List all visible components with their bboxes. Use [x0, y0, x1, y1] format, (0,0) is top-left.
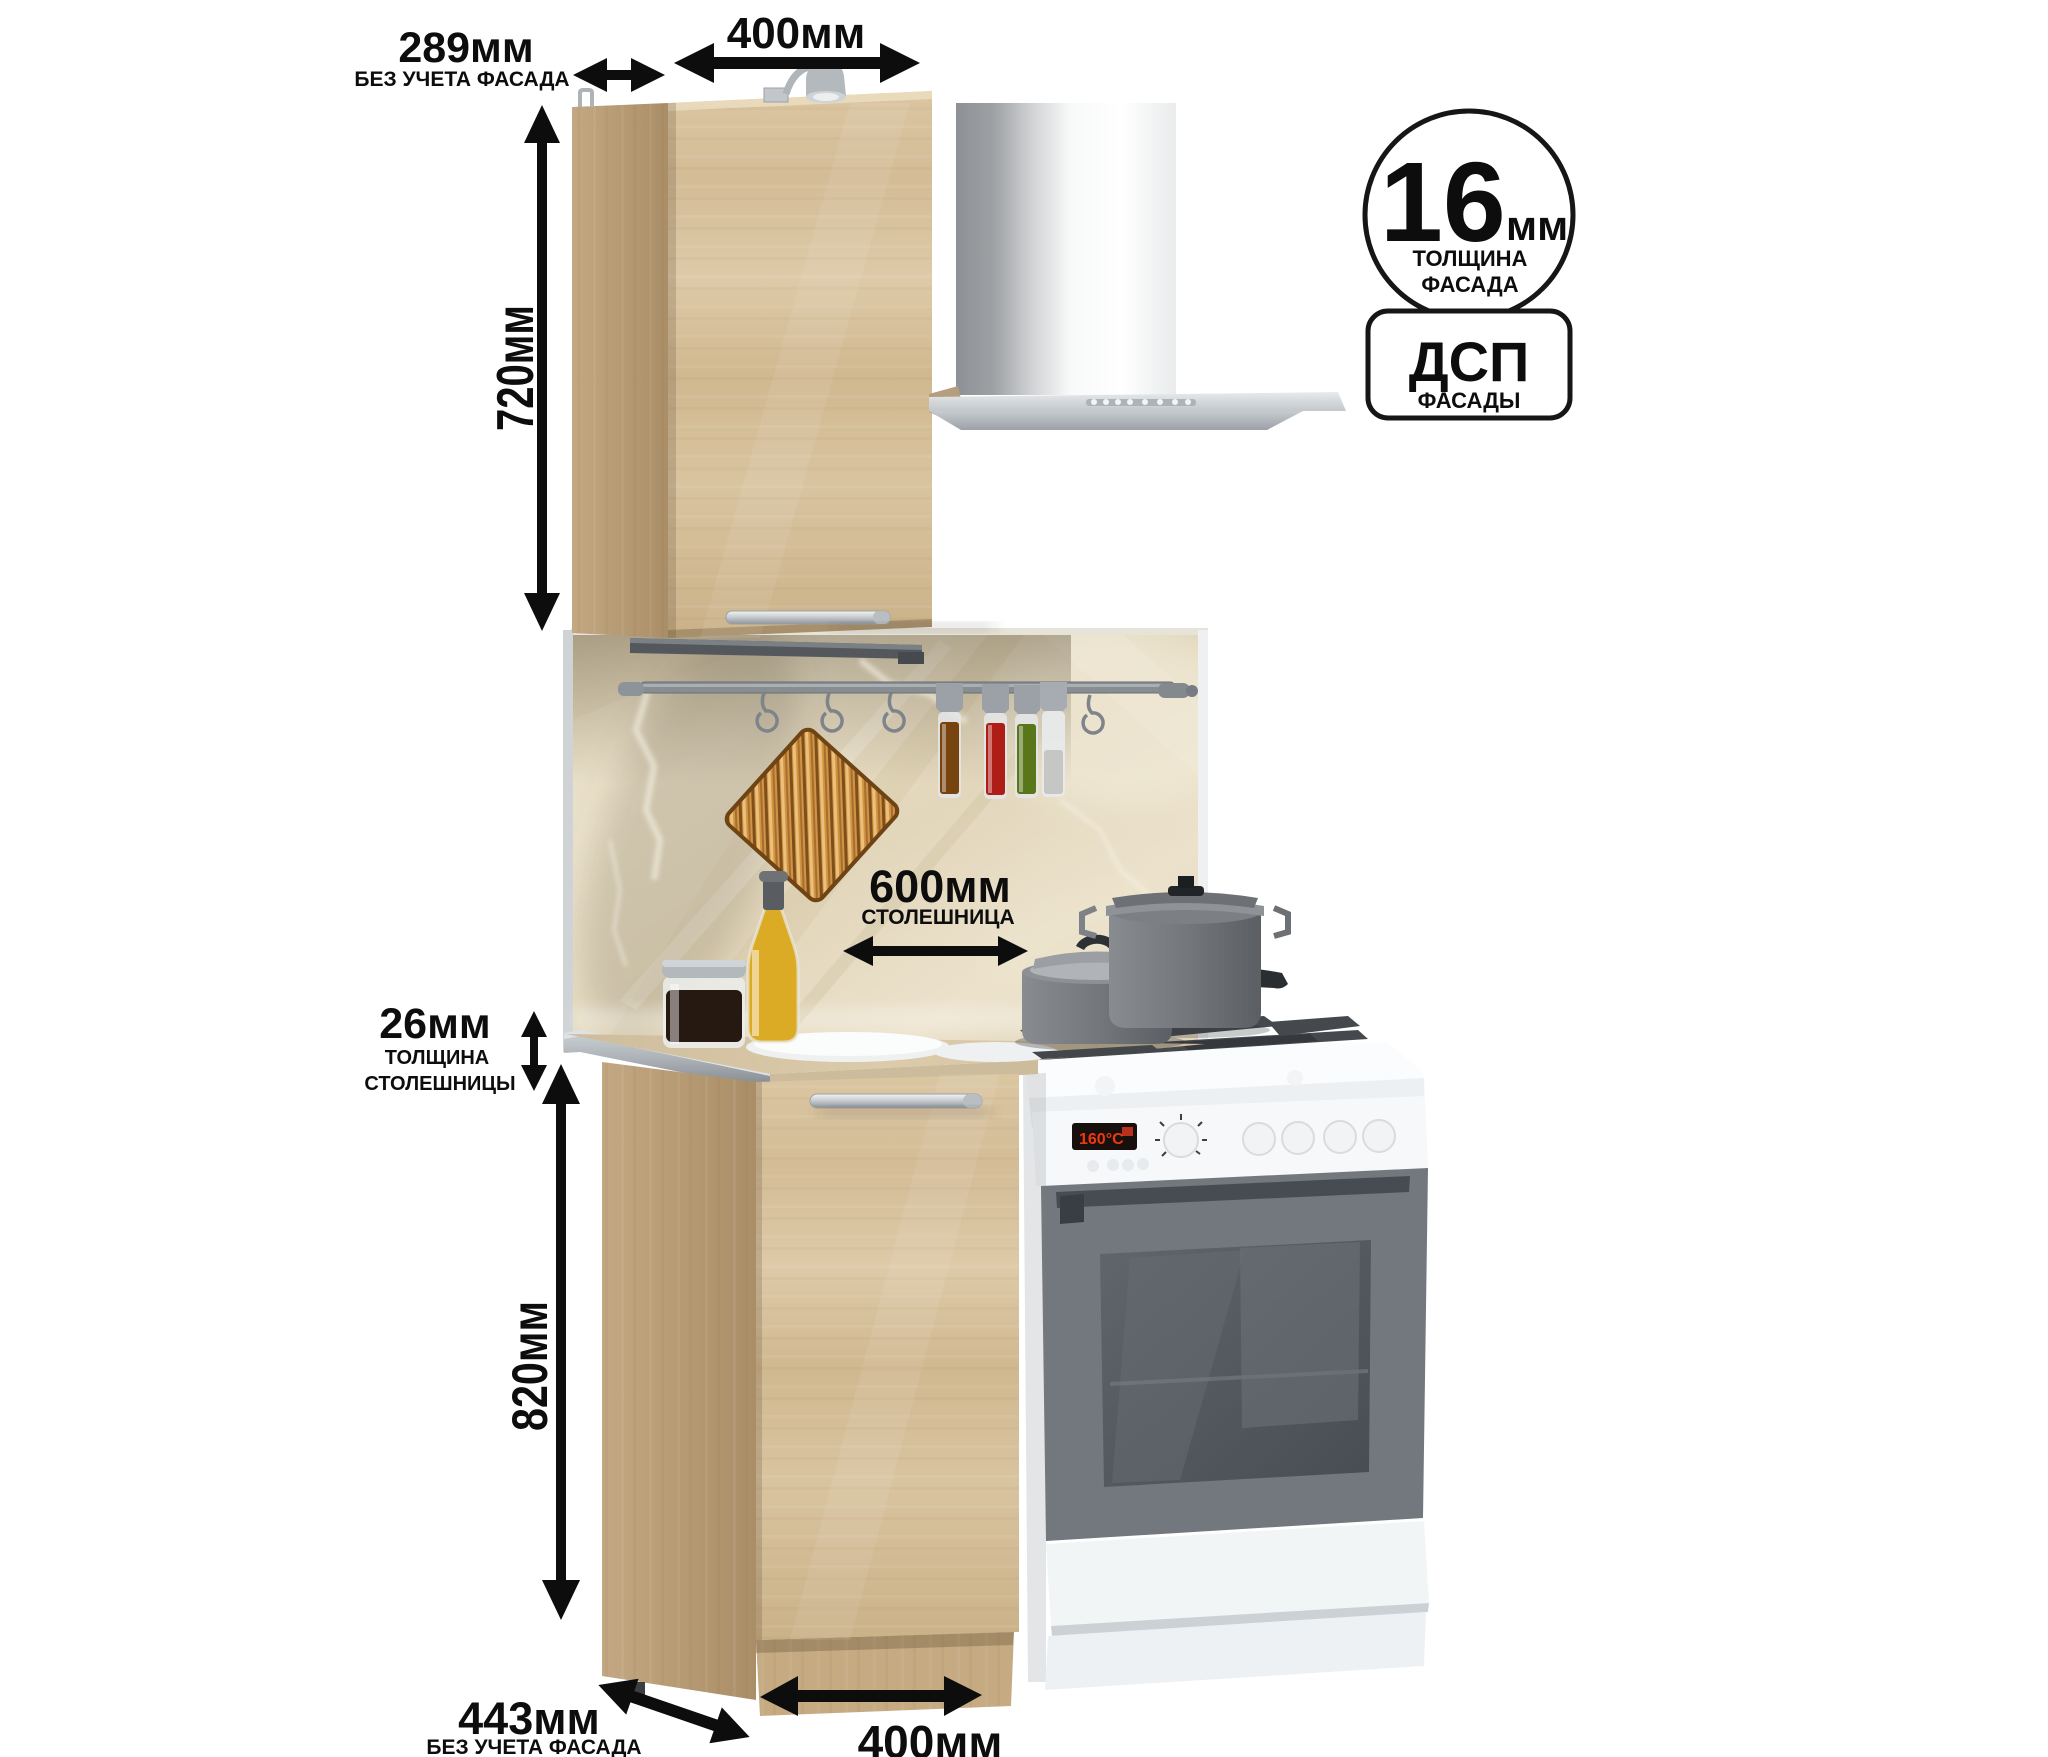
svg-text:289мм: 289мм — [398, 24, 533, 72]
svg-text:400мм: 400мм — [858, 1716, 1003, 1757]
svg-text:БЕЗ УЧЕТА ФАСАДА: БЕЗ УЧЕТА ФАСАДА — [426, 1736, 641, 1757]
svg-text:820мм: 820мм — [502, 1301, 558, 1431]
svg-text:600мм: 600мм — [869, 861, 1011, 912]
svg-text:СТОЛЕШНИЦА: СТОЛЕШНИЦА — [861, 906, 1014, 929]
svg-text:26мм: 26мм — [379, 1000, 490, 1048]
svg-text:ФАСАДЫ: ФАСАДЫ — [1418, 388, 1521, 413]
svg-text:ФАСАДА: ФАСАДА — [1421, 272, 1518, 297]
svg-text:мм: мм — [1506, 202, 1568, 249]
svg-text:160°C: 160°C — [1079, 1131, 1124, 1148]
svg-text:СТОЛЕШНИЦЫ: СТОЛЕШНИЦЫ — [364, 1073, 515, 1095]
svg-text:БЕЗ УЧЕТА ФАСАДА: БЕЗ УЧЕТА ФАСАДА — [354, 68, 569, 91]
svg-text:720мм: 720мм — [487, 305, 545, 431]
svg-text:400мм: 400мм — [727, 9, 866, 58]
svg-text:ТОЛЩИНА: ТОЛЩИНА — [1413, 246, 1528, 271]
svg-text:ТОЛЩИНА: ТОЛЩИНА — [385, 1047, 489, 1069]
svg-text:ДСП: ДСП — [1409, 330, 1530, 393]
